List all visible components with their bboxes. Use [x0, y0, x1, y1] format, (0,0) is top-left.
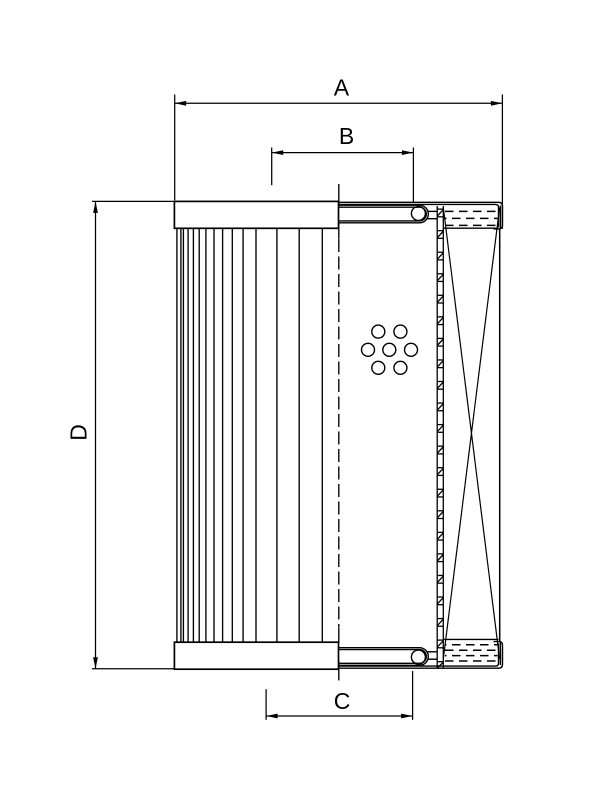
- svg-text:B: B: [339, 123, 354, 149]
- svg-text:D: D: [65, 424, 91, 441]
- svg-text:A: A: [334, 75, 350, 101]
- svg-text:C: C: [334, 688, 351, 714]
